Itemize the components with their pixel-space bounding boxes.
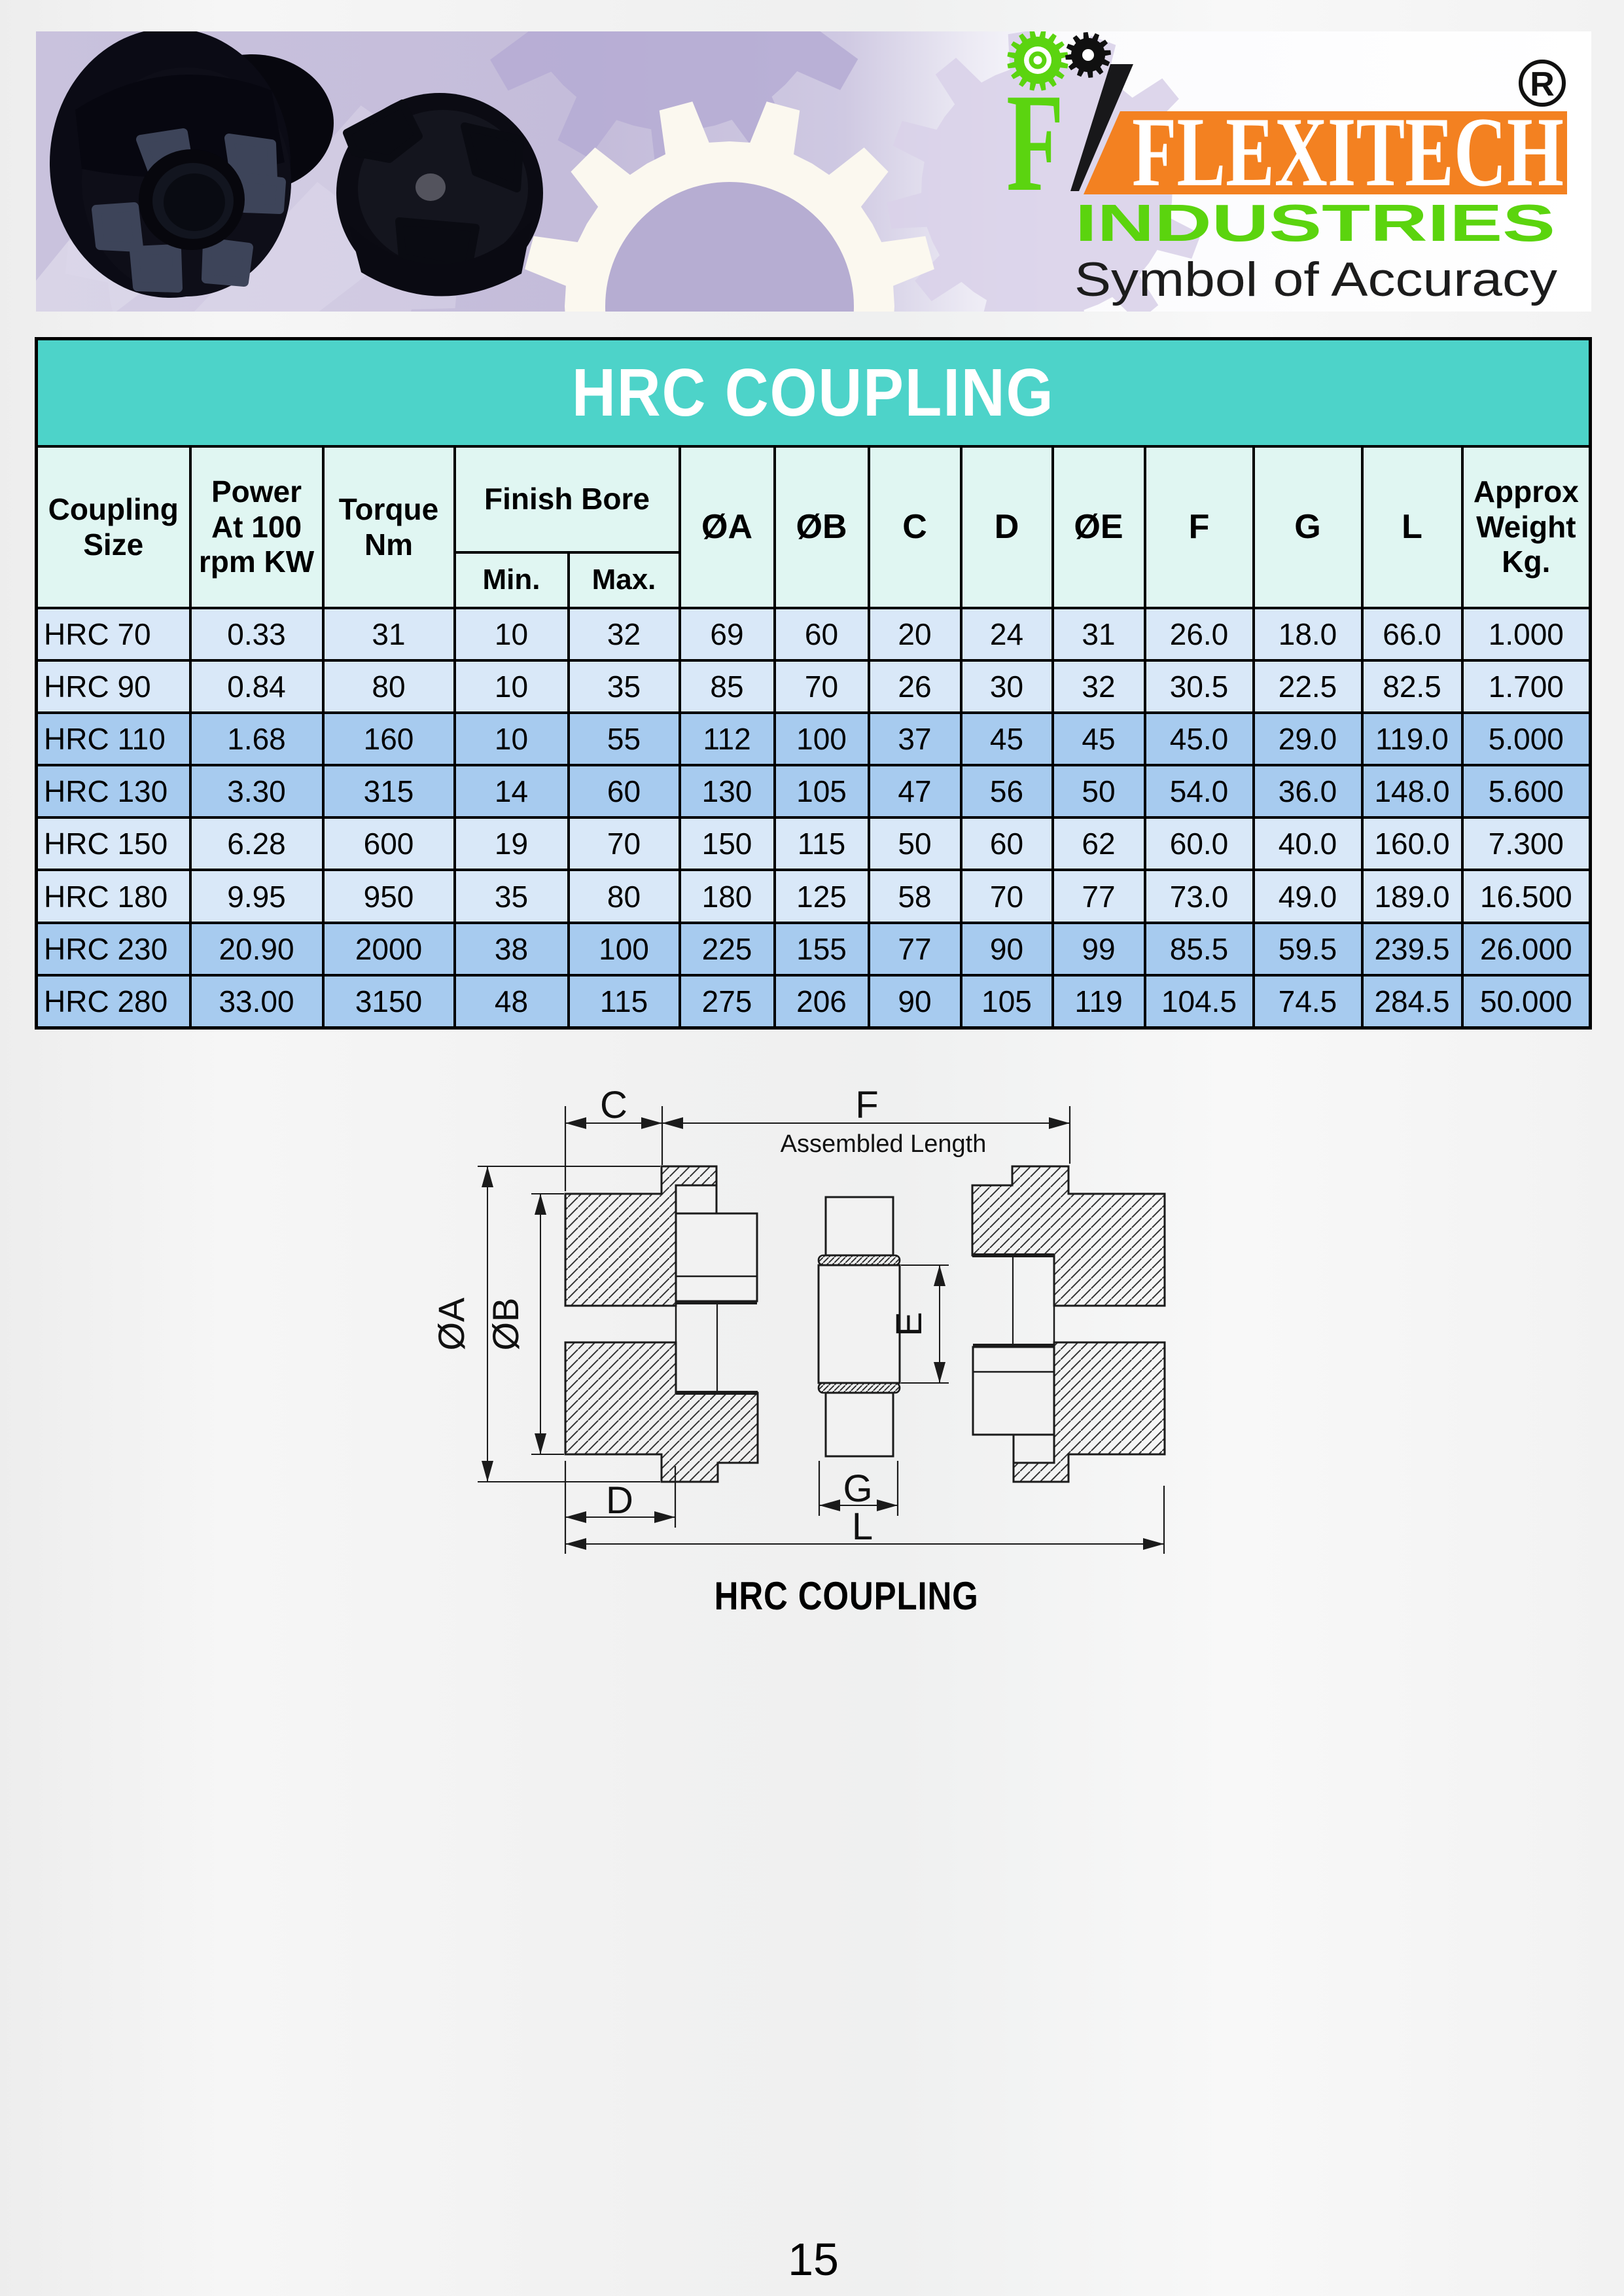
svg-text:R: R — [1530, 65, 1555, 103]
svg-text:FLEXITECH: FLEXITECH — [1132, 97, 1564, 207]
svg-text:Assembled Length: Assembled Length — [781, 1130, 987, 1158]
svg-text:F: F — [855, 1084, 878, 1126]
svg-text:F: F — [1006, 64, 1064, 221]
svg-text:ØA: ØA — [431, 1297, 472, 1351]
svg-text:Symbol of Accuracy: Symbol of Accuracy — [1074, 253, 1558, 306]
svg-text:L: L — [852, 1505, 873, 1548]
svg-text:C: C — [600, 1084, 627, 1126]
svg-text:INDUSTRIES: INDUSTRIES — [1075, 194, 1555, 252]
svg-text:G: G — [843, 1467, 872, 1510]
svg-text:D: D — [606, 1479, 633, 1522]
svg-text:E: E — [888, 1312, 929, 1336]
svg-text:ØB: ØB — [485, 1298, 526, 1351]
